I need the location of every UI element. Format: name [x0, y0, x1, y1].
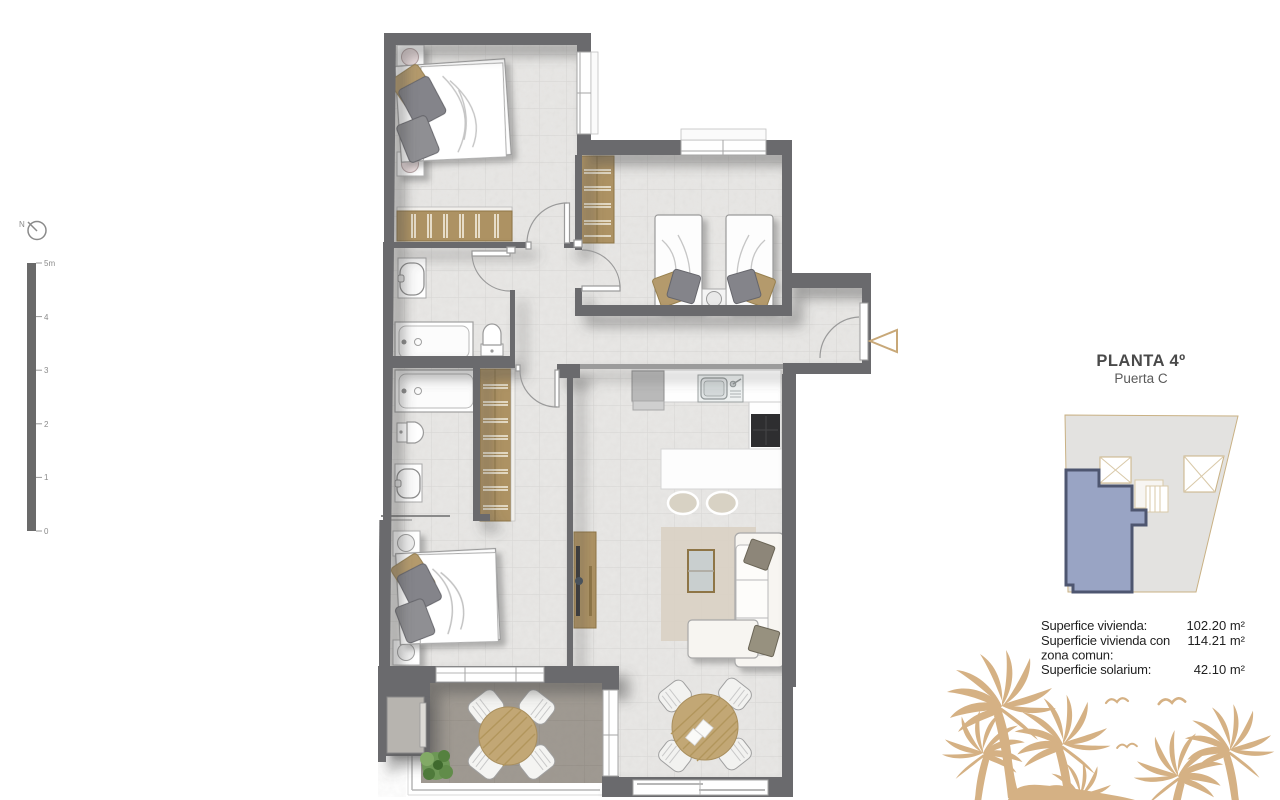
- svg-text:3: 3: [44, 366, 49, 375]
- svg-text:PLANTA 4º: PLANTA 4º: [1096, 352, 1185, 370]
- svg-text:2: 2: [44, 420, 49, 429]
- svg-text:5m: 5m: [44, 259, 55, 268]
- svg-text:0: 0: [44, 527, 49, 536]
- svg-text:Puerta C: Puerta C: [1114, 371, 1168, 386]
- svg-text:1: 1: [44, 473, 49, 482]
- svg-text:zona comun:: zona comun:: [1041, 648, 1113, 663]
- svg-text:42.10 m²: 42.10 m²: [1194, 662, 1246, 677]
- svg-text:Superficie solarium:: Superficie solarium:: [1041, 662, 1151, 677]
- svg-text:114.21 m²: 114.21 m²: [1187, 633, 1245, 648]
- svg-text:Superficie vivienda con: Superficie vivienda con: [1041, 633, 1170, 648]
- svg-text:102.20 m²: 102.20 m²: [1186, 618, 1245, 633]
- svg-text:N: N: [19, 220, 25, 229]
- svg-text:4: 4: [44, 313, 49, 322]
- svg-text:Superfice vivienda:: Superfice vivienda:: [1041, 618, 1147, 633]
